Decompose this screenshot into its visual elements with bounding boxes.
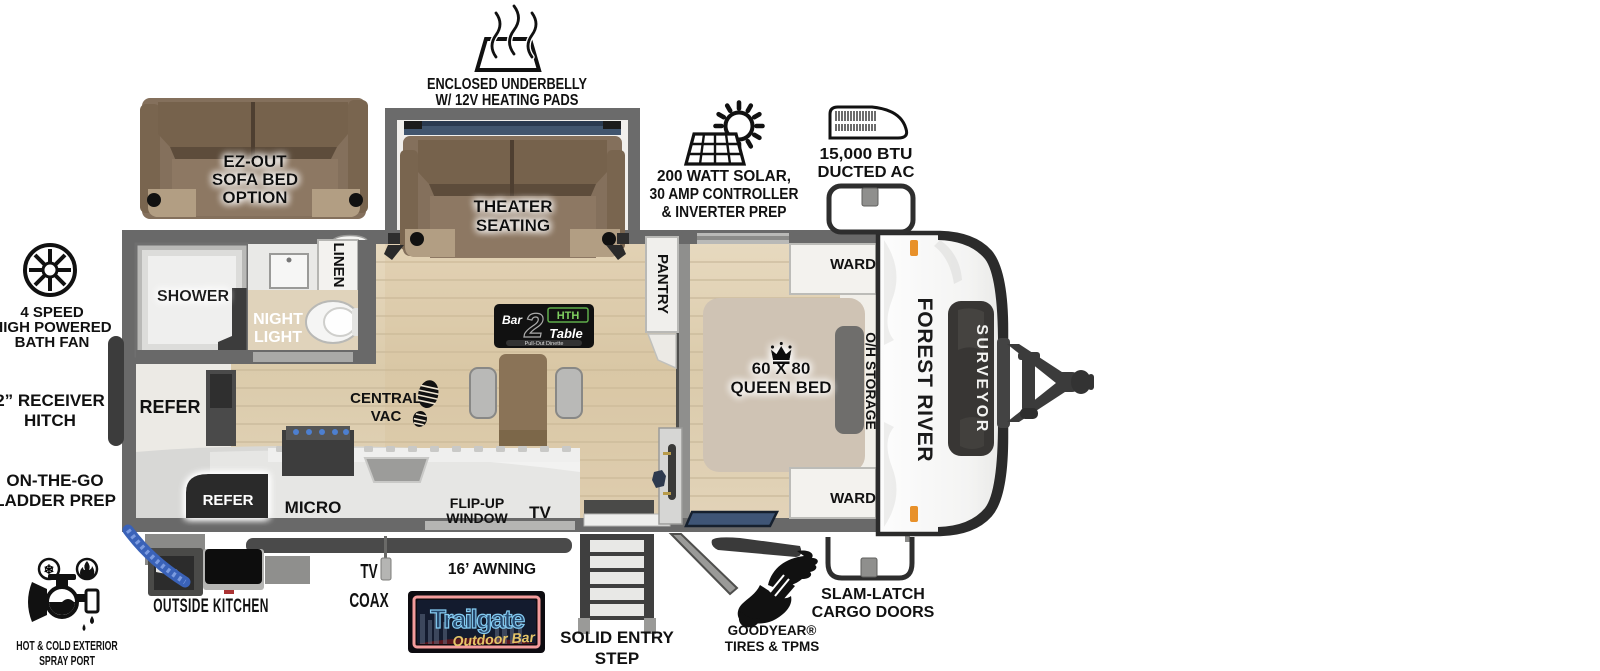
- svg-text:TV: TV: [360, 560, 378, 582]
- svg-text:SURVEYOR: SURVEYOR: [973, 324, 990, 434]
- svg-text:SLAM-LATCH: SLAM-LATCH: [821, 586, 925, 603]
- svg-text:GOODYEAR®: GOODYEAR®: [728, 623, 817, 638]
- svg-text:WARD: WARD: [830, 490, 876, 507]
- svg-text:TV: TV: [529, 503, 551, 522]
- svg-text:WARD: WARD: [830, 256, 876, 273]
- svg-text:Pull-Out Dinette: Pull-Out Dinette: [525, 341, 564, 347]
- svg-text:BATH FAN: BATH FAN: [15, 334, 90, 351]
- svg-text:VAC: VAC: [371, 408, 402, 425]
- svg-text:STEP: STEP: [595, 649, 639, 668]
- svg-text:16’ AWNING: 16’ AWNING: [448, 561, 536, 578]
- svg-text:HTH: HTH: [557, 310, 580, 322]
- svg-text:HITCH: HITCH: [24, 411, 76, 430]
- svg-text:QUEEN BED: QUEEN BED: [730, 378, 831, 397]
- svg-text:CARGO DOORS: CARGO DOORS: [812, 604, 935, 621]
- svg-text:ENCLOSED UNDERBELLY: ENCLOSED UNDERBELLY: [427, 76, 587, 93]
- svg-text:PANTRY: PANTRY: [654, 254, 671, 314]
- svg-text:30 AMP CONTROLLER: 30 AMP CONTROLLER: [650, 186, 799, 203]
- svg-text:FLIP-UP: FLIP-UP: [450, 495, 504, 511]
- svg-text:Table: Table: [549, 326, 582, 341]
- svg-text:OPTION: OPTION: [222, 188, 287, 207]
- svg-text:60 X 80: 60 X 80: [752, 359, 811, 378]
- svg-text:DUCTED AC: DUCTED AC: [818, 164, 915, 181]
- svg-text:HOT & COLD EXTERIOR: HOT & COLD EXTERIOR: [16, 639, 117, 653]
- svg-text:COAX: COAX: [349, 589, 389, 611]
- svg-text:NIGHT: NIGHT: [253, 311, 303, 328]
- svg-text:CENTRAL: CENTRAL: [350, 390, 422, 407]
- svg-text:200 WATT SOLAR,: 200 WATT SOLAR,: [657, 168, 791, 185]
- svg-text:OUTSIDE KITCHEN: OUTSIDE KITCHEN: [153, 595, 269, 617]
- svg-text:TIRES & TPMS: TIRES & TPMS: [725, 639, 820, 654]
- svg-text:Bar: Bar: [502, 313, 523, 327]
- svg-text:LIGHT: LIGHT: [254, 329, 302, 346]
- svg-text:ON-THE-GO: ON-THE-GO: [6, 471, 103, 490]
- svg-text:REFER: REFER: [203, 492, 254, 509]
- svg-text:LINEN: LINEN: [330, 243, 347, 288]
- svg-text:WINDOW: WINDOW: [446, 510, 508, 526]
- svg-text:SEATING: SEATING: [476, 216, 550, 235]
- svg-text:15,000 BTU: 15,000 BTU: [820, 146, 913, 163]
- svg-text:LADDER PREP: LADDER PREP: [0, 491, 116, 510]
- svg-text:SPRAY PORT: SPRAY PORT: [39, 654, 95, 668]
- svg-text:2: 2: [524, 307, 544, 345]
- svg-text:THEATER: THEATER: [473, 197, 552, 216]
- svg-text:& INVERTER PREP: & INVERTER PREP: [662, 204, 787, 221]
- svg-text:MICRO: MICRO: [285, 498, 342, 517]
- svg-text:SHOWER: SHOWER: [157, 288, 229, 305]
- svg-text:SOFA BED: SOFA BED: [212, 170, 298, 189]
- svg-text:FOREST RIVER: FOREST RIVER: [913, 298, 936, 463]
- svg-text:REFER: REFER: [139, 397, 200, 417]
- svg-text:SOLID ENTRY: SOLID ENTRY: [560, 628, 674, 647]
- svg-text:2” RECEIVER: 2” RECEIVER: [0, 391, 105, 410]
- svg-text:EZ-OUT: EZ-OUT: [223, 152, 287, 171]
- svg-text:W/ 12V HEATING PADS: W/ 12V HEATING PADS: [436, 92, 579, 109]
